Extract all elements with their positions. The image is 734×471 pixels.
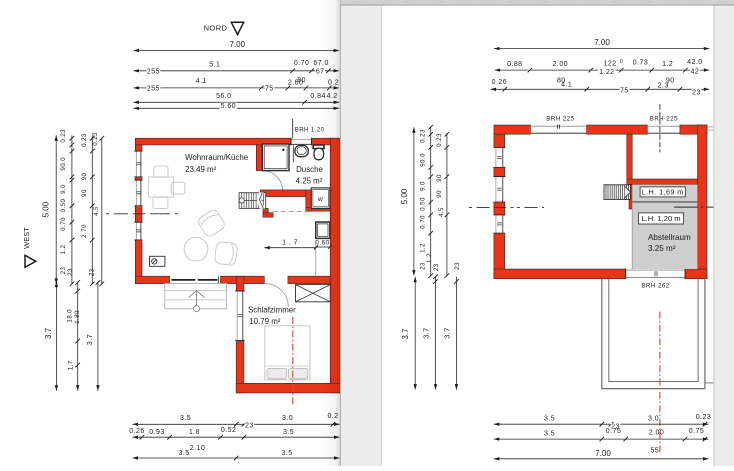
svg-text:90.0: 90.0 (60, 157, 67, 171)
svg-text:3.0: 3.0 (282, 415, 293, 422)
svg-text:80: 80 (297, 77, 306, 84)
svg-text:18.0: 18.0 (67, 309, 74, 323)
svg-text:2.10: 2.10 (190, 445, 205, 452)
svg-text:BRH 1.20: BRH 1.20 (295, 128, 325, 134)
svg-text:23: 23 (454, 262, 461, 270)
svg-text:7.00: 7.00 (230, 40, 246, 49)
svg-text:56.0: 56.0 (216, 93, 231, 100)
svg-text:0.23: 0.23 (81, 133, 88, 147)
svg-text:0.93: 0.93 (149, 429, 164, 436)
svg-text:BRH 225: BRH 225 (546, 115, 574, 122)
svg-text:3.5: 3.5 (281, 450, 292, 457)
svg-text:23: 23 (245, 423, 254, 430)
svg-text:3.7: 3.7 (85, 334, 94, 345)
svg-text:WEST: WEST (22, 227, 31, 249)
svg-text:90: 90 (81, 173, 88, 181)
svg-text:1.80: 1.80 (74, 310, 81, 324)
svg-text:3.5: 3.5 (178, 450, 189, 457)
svg-text:255: 255 (147, 85, 160, 92)
svg-text:3.7: 3.7 (422, 327, 431, 338)
svg-text:3.5: 3.5 (180, 415, 191, 422)
svg-text:0.23: 0.23 (436, 133, 443, 147)
svg-text:7.00: 7.00 (594, 38, 610, 47)
svg-text:10.79 m²: 10.79 m² (249, 317, 281, 326)
svg-text:0.23: 0.23 (92, 132, 99, 146)
svg-text:3.25 m²: 3.25 m² (648, 244, 676, 253)
svg-text:0.70: 0.70 (294, 60, 309, 67)
svg-text:1 . 7: 1 . 7 (282, 240, 298, 247)
svg-text:4.1: 4.1 (196, 78, 207, 85)
svg-text:75: 75 (265, 85, 274, 92)
svg-text:90: 90 (81, 189, 88, 197)
svg-text:90: 90 (666, 77, 675, 84)
svg-text:3.7: 3.7 (44, 327, 53, 339)
svg-text:9.0: 9.0 (420, 181, 427, 191)
svg-text:0.50: 0.50 (60, 199, 67, 213)
svg-text:42.0: 42.0 (687, 59, 702, 66)
svg-text:1.2: 1.2 (60, 244, 67, 254)
svg-text:NORD: NORD (204, 24, 228, 33)
svg-text:3.7: 3.7 (443, 327, 452, 338)
svg-text:4.25 m²: 4.25 m² (296, 177, 323, 186)
svg-text:3.5: 3.5 (283, 429, 294, 436)
svg-text:5.00: 5.00 (400, 188, 409, 204)
svg-text:3.7: 3.7 (401, 328, 410, 340)
svg-text:Abstellraum: Abstellraum (648, 233, 691, 242)
svg-text:0.75: 0.75 (606, 428, 621, 435)
svg-text:L.H. 1,69 m: L.H. 1,69 m (642, 188, 684, 197)
svg-text:1.2: 1.2 (662, 61, 673, 68)
svg-text:23: 23 (433, 263, 440, 271)
svg-text:0.23: 0.23 (696, 414, 711, 421)
svg-text:1.8: 1.8 (189, 429, 200, 436)
svg-text:2.00: 2.00 (649, 430, 664, 437)
svg-text:5.00: 5.00 (42, 201, 51, 217)
svg-text:0.50: 0.50 (420, 197, 427, 211)
svg-text:Schlafzimmer: Schlafzimmer (248, 305, 296, 314)
svg-text:Wohnraum/Küche: Wohnraum/Küche (185, 153, 249, 162)
svg-text:0.26: 0.26 (129, 428, 144, 435)
svg-text:23: 23 (67, 268, 74, 276)
svg-text:0.73: 0.73 (633, 60, 648, 67)
svg-text:90.0: 90.0 (420, 153, 427, 167)
svg-text:4.5: 4.5 (93, 206, 100, 216)
svg-text:BRH 262: BRH 262 (641, 283, 669, 290)
svg-text:3.0: 3.0 (648, 416, 659, 423)
svg-text:4.1: 4.1 (561, 81, 572, 88)
svg-text:0.26: 0.26 (492, 79, 507, 86)
svg-text:3.5: 3.5 (544, 431, 555, 438)
svg-text:23: 23 (692, 89, 701, 96)
svg-text:5.1: 5.1 (209, 62, 220, 69)
svg-text:0.52: 0.52 (221, 427, 236, 434)
svg-text:Dusche: Dusche (296, 165, 323, 174)
svg-text:90: 90 (436, 190, 443, 198)
svg-text:75: 75 (620, 87, 629, 94)
svg-text:1.7: 1.7 (68, 360, 75, 370)
svg-text:1.2: 1.2 (420, 243, 427, 253)
svg-text:BRH 225: BRH 225 (650, 115, 678, 122)
svg-text:90: 90 (436, 174, 443, 182)
svg-text:23: 23 (60, 267, 67, 275)
svg-text:255: 255 (147, 68, 160, 75)
svg-text:1.22: 1.22 (599, 69, 614, 76)
svg-text:L.H. 1,20 m: L.H. 1,20 m (641, 214, 680, 223)
svg-text:0: 0 (620, 59, 623, 65)
svg-text:0.75: 0.75 (689, 428, 704, 435)
svg-text:9.0: 9.0 (60, 184, 67, 194)
svg-text:0.70: 0.70 (420, 215, 427, 229)
svg-text:0.70: 0.70 (60, 217, 67, 231)
svg-text:2.00: 2.00 (553, 61, 568, 68)
svg-text:23: 23 (89, 268, 96, 276)
svg-text:55: 55 (650, 447, 659, 454)
svg-text:23.49 m²: 23.49 m² (185, 165, 217, 174)
svg-text:122: 122 (603, 61, 616, 68)
svg-text:0.23: 0.23 (420, 129, 427, 143)
svg-text:4.5: 4.5 (438, 207, 445, 217)
svg-text:2.70: 2.70 (81, 224, 88, 238)
svg-text:5.60: 5.60 (221, 103, 236, 110)
svg-text:3.5: 3.5 (544, 416, 555, 423)
svg-text:42: 42 (691, 69, 700, 76)
svg-text:7.00: 7.00 (595, 449, 611, 458)
svg-text:0.23: 0.23 (60, 129, 67, 143)
svg-text:1.2: 1.2 (426, 253, 433, 263)
svg-text:0.88: 0.88 (507, 61, 522, 68)
